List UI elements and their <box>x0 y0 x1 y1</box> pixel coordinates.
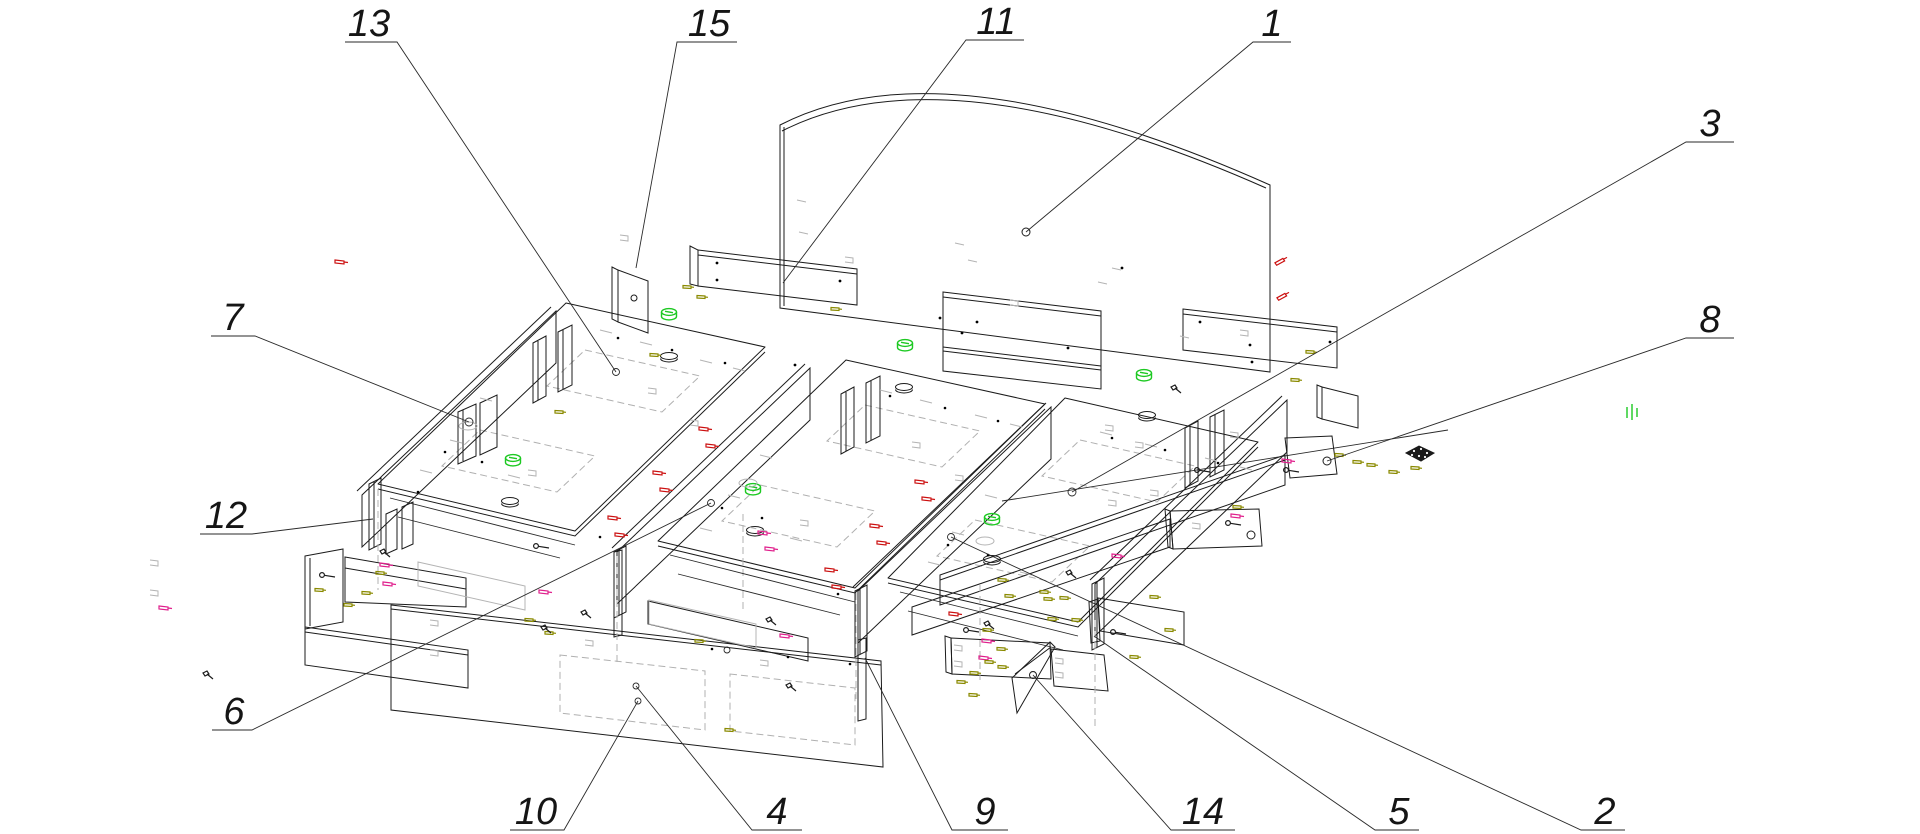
svg-text:3: 3 <box>1699 103 1720 145</box>
svg-text:8: 8 <box>1699 299 1720 341</box>
svg-text:11: 11 <box>976 1 1015 43</box>
svg-text:9: 9 <box>974 791 995 833</box>
svg-text:5: 5 <box>1388 791 1410 833</box>
svg-text:12: 12 <box>205 495 247 537</box>
svg-text:14: 14 <box>1182 791 1224 833</box>
svg-text:7: 7 <box>222 297 245 339</box>
svg-text:4: 4 <box>766 791 787 833</box>
svg-text:10: 10 <box>515 791 557 833</box>
svg-text:15: 15 <box>688 3 731 45</box>
svg-text:1: 1 <box>1261 3 1282 45</box>
svg-text:13: 13 <box>348 3 390 45</box>
svg-text:2: 2 <box>1593 791 1615 833</box>
svg-text:6: 6 <box>223 691 245 733</box>
